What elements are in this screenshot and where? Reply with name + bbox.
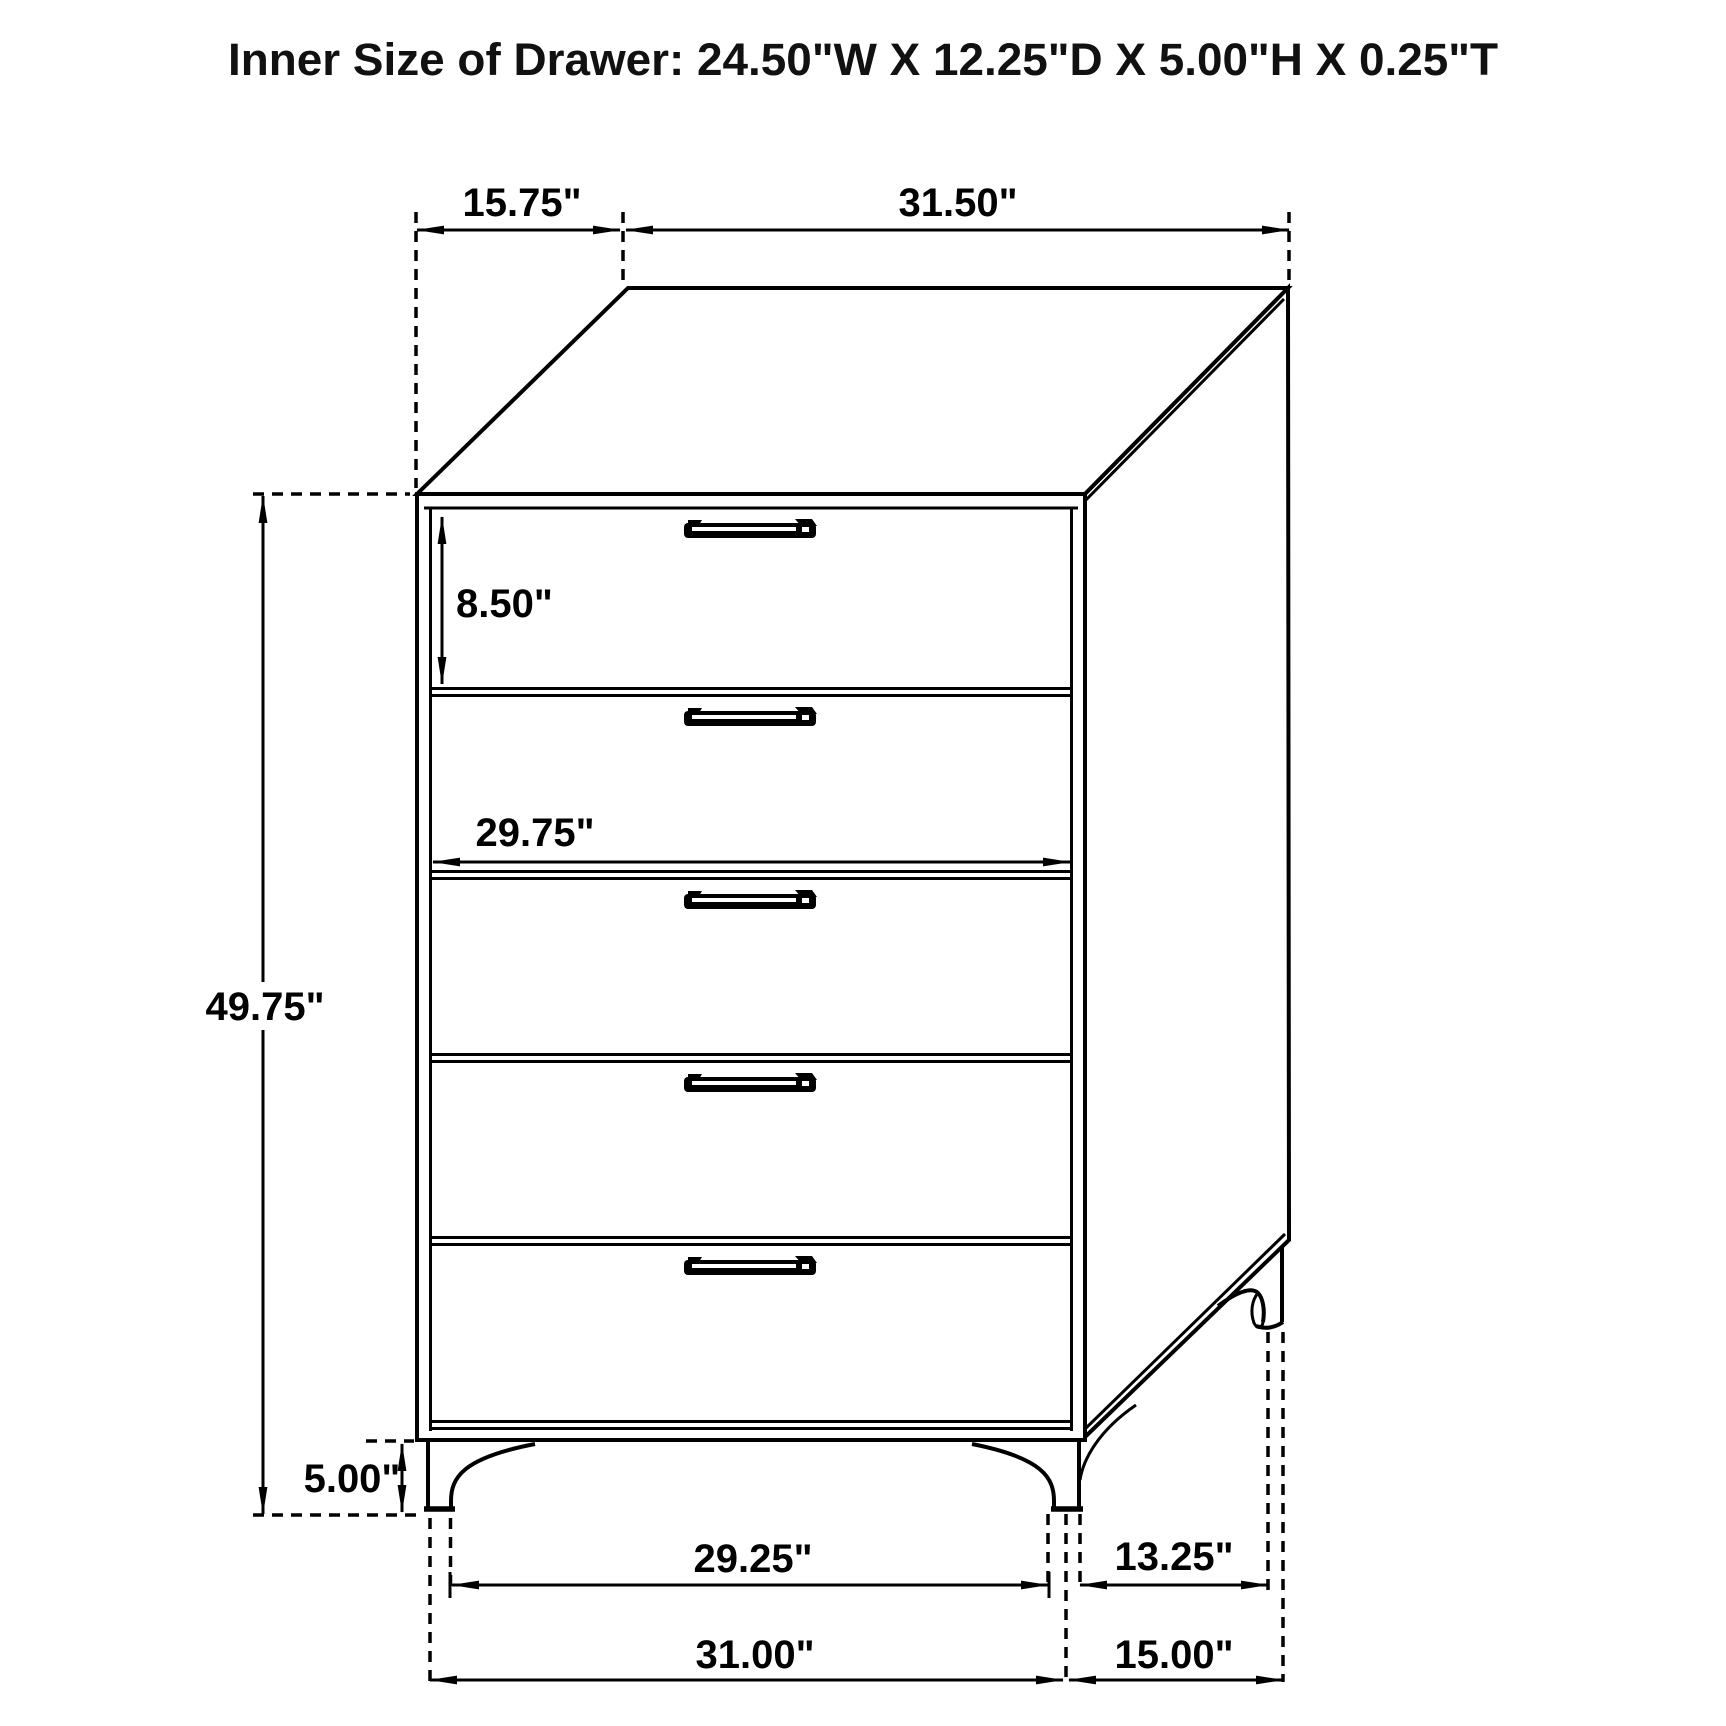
dim-top-width: 31.50" — [626, 181, 1289, 230]
dim-label-overall-height: 49.75" — [205, 985, 324, 1029]
dim-top-depth: 15.75" — [417, 181, 620, 230]
dim-label-side-leg-span: 13.25" — [1114, 1535, 1233, 1579]
dim-label-top-width: 31.50" — [898, 181, 1017, 225]
cabinet-drawing — [417, 288, 1289, 1509]
dim-label-top-depth: 15.75" — [462, 181, 581, 225]
dim-label-front-leg-inner-span: 29.25" — [693, 1537, 812, 1581]
front-left-leg — [424, 1442, 535, 1509]
cabinet-front-face — [417, 494, 1085, 1440]
dim-label-leg-height: 5.00" — [304, 1457, 401, 1501]
dim-leg-height: 5.00" — [304, 1444, 402, 1512]
diagram-title: Inner Size of Drawer: 24.50"W X 12.25"D … — [228, 34, 1498, 85]
dim-label-drawer-width: 29.75" — [475, 811, 594, 855]
dim-front-leg-inner-span: 29.25" — [450, 1537, 1049, 1598]
dim-label-base-depth: 15.00" — [1114, 1633, 1233, 1677]
cabinet-side-face — [1085, 288, 1289, 1437]
chest-dimension-diagram: Inner Size of Drawer: 24.50"W X 12.25"D … — [0, 0, 1726, 1726]
dim-overall-height: 49.75" — [198, 496, 332, 1514]
dim-side-leg-span: 13.25" — [1080, 1535, 1268, 1585]
dim-base-depth: 15.00" — [1069, 1633, 1283, 1680]
dim-base-width: 31.00" — [430, 1633, 1063, 1680]
dim-label-top-drawer-height: 8.50" — [456, 582, 553, 626]
dim-label-base-width: 31.00" — [695, 1633, 814, 1677]
diagram-canvas: Inner Size of Drawer: 24.50"W X 12.25"D … — [0, 0, 1726, 1726]
